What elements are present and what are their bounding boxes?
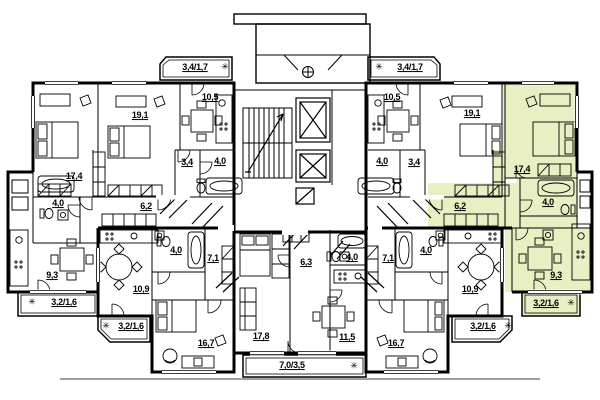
selected-apartment-highlight[interactable] <box>428 83 592 316</box>
drain-icon <box>303 67 314 78</box>
balcony-right-inner-box <box>452 316 512 342</box>
duct-shaft <box>296 188 314 204</box>
balcony-top-right-box <box>368 57 440 80</box>
dresser <box>40 94 570 108</box>
round-table <box>96 244 504 290</box>
balcony-left-outer-box <box>18 292 98 316</box>
sofa <box>240 288 256 330</box>
balcony-top-left-box <box>160 57 232 80</box>
staircase <box>243 108 292 178</box>
stair-tower <box>234 14 370 83</box>
floor-plan: 3,4/1,7 ✳ 10,5 19,1 3,4 4,0 17,4 6,2 4,0… <box>0 0 600 400</box>
floor-plan-drawing <box>0 0 600 400</box>
elevator-shafts <box>296 98 330 204</box>
balcony-left-inner-box <box>98 316 150 342</box>
entry-door-marks <box>160 196 440 292</box>
elevator-2 <box>296 150 330 182</box>
elevator-1 <box>296 98 330 142</box>
balcony-bottom-box <box>243 355 366 377</box>
